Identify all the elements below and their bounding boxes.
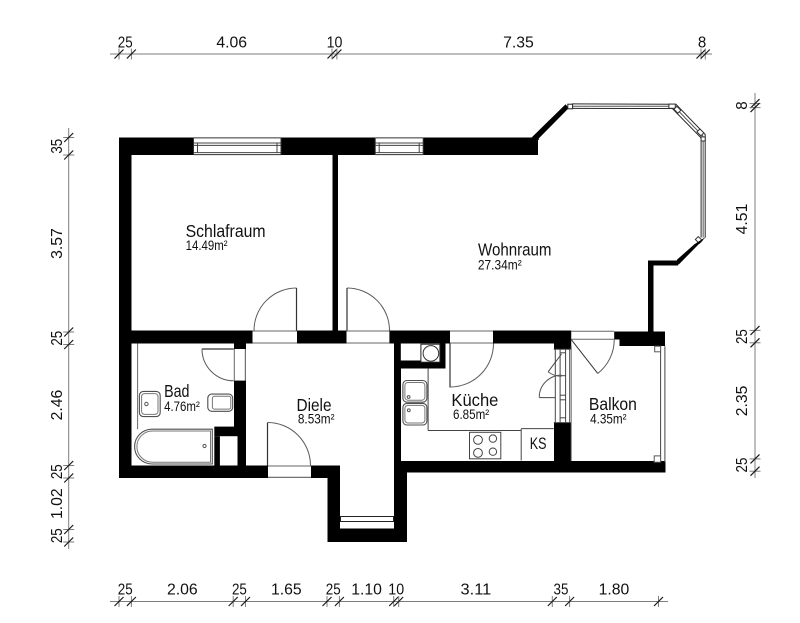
svg-text:14.49m²: 14.49m² [186,237,228,253]
svg-text:25: 25 [49,528,66,543]
svg-text:10: 10 [388,582,404,599]
svg-text:10: 10 [327,35,343,52]
svg-text:35: 35 [49,139,66,154]
svg-text:25: 25 [118,582,133,599]
svg-text:6.85m²: 6.85m² [453,406,489,422]
svg-text:27.34m²: 27.34m² [478,257,522,273]
svg-text:25: 25 [49,331,66,346]
svg-text:8: 8 [698,35,706,52]
svg-text:25: 25 [232,582,247,599]
svg-text:4.76m²: 4.76m² [164,398,200,414]
svg-text:3.57: 3.57 [49,228,66,259]
svg-text:8: 8 [734,101,751,109]
svg-text:7.35: 7.35 [503,35,534,52]
svg-text:1.02: 1.02 [49,488,66,519]
svg-text:25: 25 [49,464,66,479]
svg-text:25: 25 [734,457,751,472]
svg-text:4.35m²: 4.35m² [590,410,627,426]
svg-text:KS: KS [530,434,547,453]
svg-text:2.35: 2.35 [734,385,751,416]
svg-text:25: 25 [118,35,133,52]
svg-text:2.06: 2.06 [167,582,198,599]
svg-text:4.06: 4.06 [216,35,247,52]
svg-text:35: 35 [554,582,569,599]
svg-text:25: 25 [734,329,751,344]
svg-text:1.10: 1.10 [351,582,382,599]
svg-text:25: 25 [326,582,341,599]
svg-text:3.11: 3.11 [461,582,492,599]
svg-text:4.51: 4.51 [734,204,751,235]
svg-text:1.65: 1.65 [271,582,302,599]
svg-text:1.80: 1.80 [599,582,630,599]
svg-text:2.46: 2.46 [49,390,66,421]
svg-text:8.53m²: 8.53m² [298,410,335,426]
